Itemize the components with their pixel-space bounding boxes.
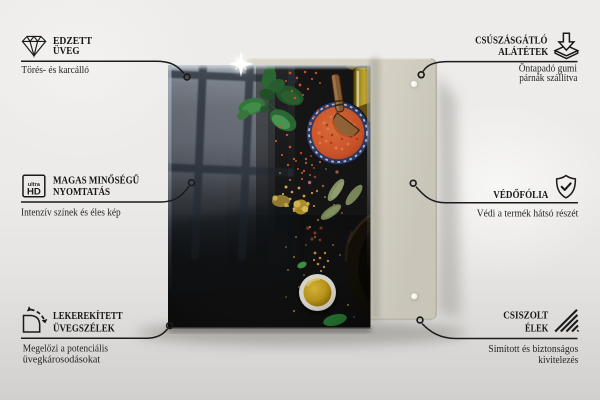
svg-text:VÉDŐFÓLIA: VÉDŐFÓLIA [493,189,548,201]
svg-text:CSISZOLT: CSISZOLT [503,309,549,321]
svg-text:ÜVEG: ÜVEG [53,44,80,57]
svg-text:Törés- és karcálló: Törés- és karcálló [21,64,89,76]
svg-text:ÉLEK: ÉLEK [525,323,549,335]
svg-text:HD: HD [27,187,41,198]
svg-text:CSÚSZÁSGÁTLÓ: CSÚSZÁSGÁTLÓ [475,35,548,47]
svg-text:ÜVEGSZÉLEK: ÜVEGSZÉLEK [53,322,115,335]
svg-text:párnák szállítva: párnák szállítva [519,73,577,84]
svg-text:kivitelezés: kivitelezés [538,354,578,366]
svg-text:NYOMTATÁS: NYOMTATÁS [53,186,110,198]
svg-text:Intenzív színek és éles kép: Intenzív színek és éles kép [21,207,121,219]
svg-text:Védi a termék hátsó részét: Védi a termék hátsó részét [477,207,579,219]
svg-text:ALÁTÉTEK: ALÁTÉTEK [498,46,548,58]
svg-text:üvegkárosodásokat: üvegkárosodásokat [23,353,101,365]
svg-text:LEKEREKÍTETT: LEKEREKÍTETT [53,310,123,322]
svg-text:MAGAS MINŐSÉGŰ: MAGAS MINŐSÉGŰ [53,174,139,186]
